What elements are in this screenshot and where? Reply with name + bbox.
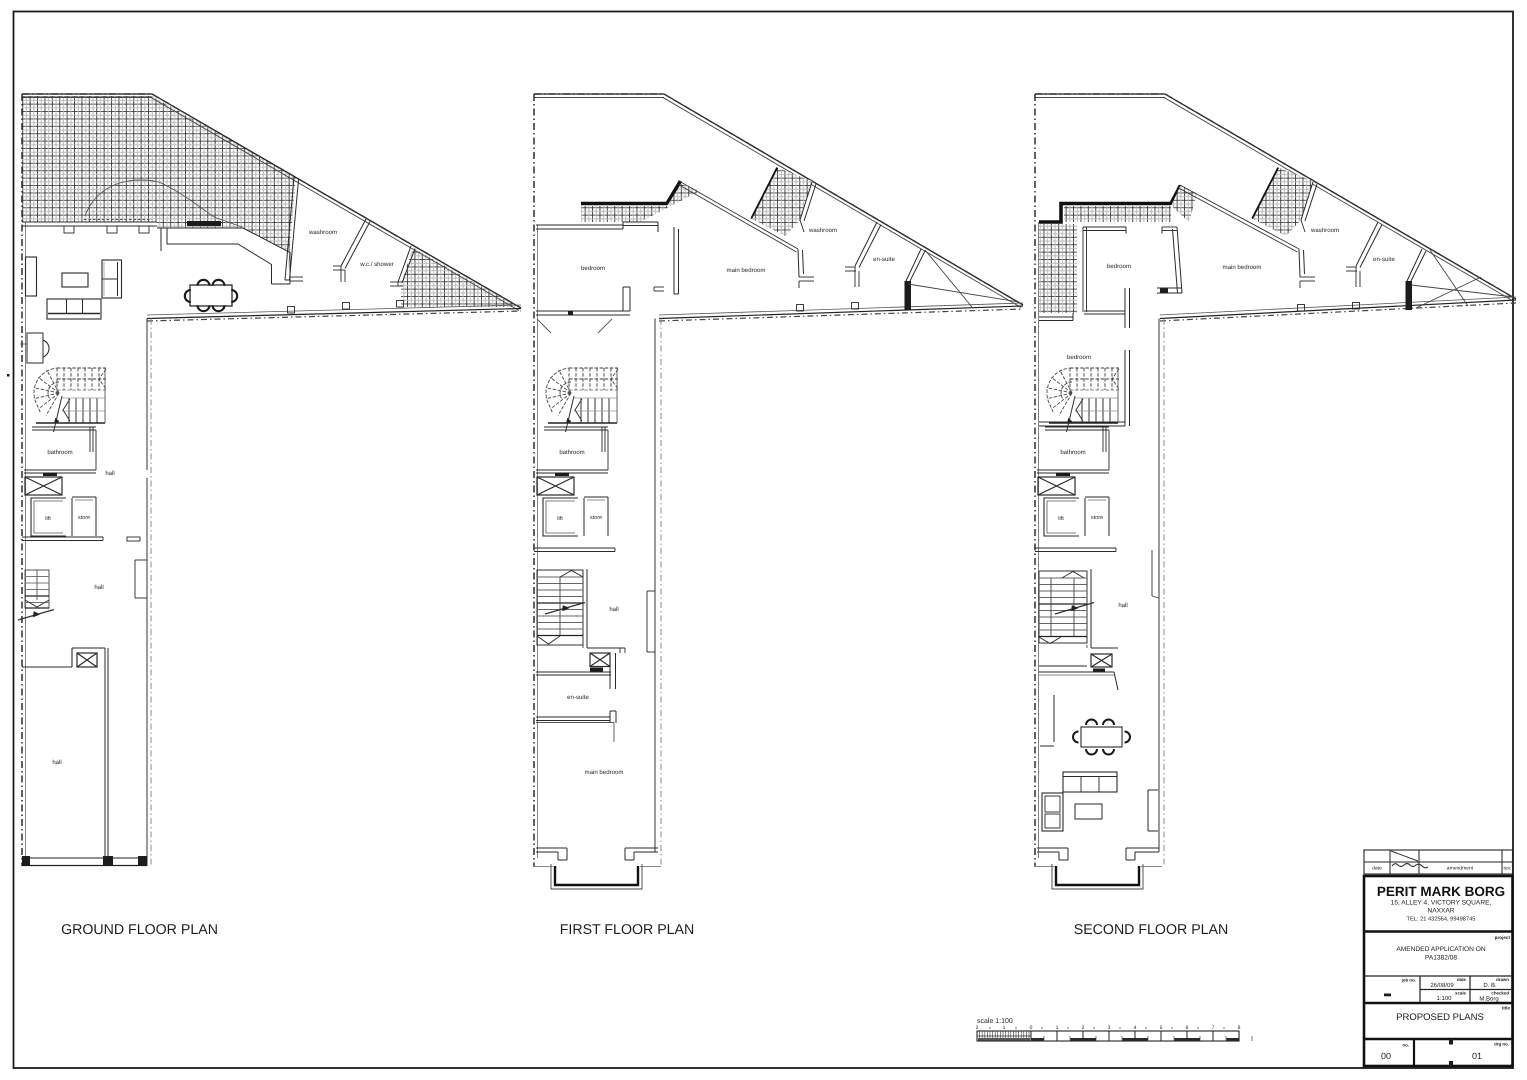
svg-text:1:100: 1:100 (1436, 995, 1452, 1002)
svg-text:hall: hall (105, 470, 114, 477)
svg-text:main bedroom: main bedroom (1223, 264, 1262, 271)
svg-text:00: 00 (1381, 1051, 1391, 1061)
svg-text:1: 1 (1056, 1025, 1059, 1031)
svg-text:hall: hall (52, 759, 61, 766)
svg-text:ʌ: ʌ (1041, 1025, 1043, 1030)
svg-text:job no.: job no. (1401, 978, 1416, 983)
svg-text:3: 3 (1108, 1025, 1111, 1031)
svg-text:ʌ: ʌ (1067, 1025, 1069, 1030)
svg-text:7: 7 (1212, 1025, 1215, 1031)
svg-text:hall: hall (609, 606, 618, 613)
svg-text:2: 2 (1082, 1025, 1085, 1031)
svg-text:en-suite: en-suite (873, 256, 895, 263)
svg-text:bedroom: bedroom (1067, 354, 1091, 361)
svg-text:PROPOSED PLANS: PROPOSED PLANS (1396, 1012, 1484, 1023)
svg-text:washroom: washroom (808, 227, 837, 234)
svg-text:ʌ: ʌ (1145, 1025, 1147, 1030)
svg-text:title: title (1502, 1006, 1511, 1011)
svg-text:01: 01 (1472, 1051, 1482, 1061)
svg-text:scale 1:100: scale 1:100 (977, 1017, 1013, 1025)
svg-text:bedroom: bedroom (1107, 263, 1131, 270)
svg-text:date: date (1372, 866, 1382, 872)
svg-text:SECOND FLOOR PLAN: SECOND FLOOR PLAN (1074, 922, 1229, 938)
svg-text:washroom: washroom (1310, 227, 1339, 234)
svg-text:lift: lift (45, 516, 51, 522)
svg-text:checked: checked (1491, 991, 1509, 996)
svg-text:en-suite: en-suite (1373, 256, 1395, 263)
svg-text:ʌ: ʌ (1119, 1025, 1121, 1030)
svg-text:4: 4 (1134, 1025, 1137, 1031)
svg-text:GROUND FLOOR PLAN: GROUND FLOOR PLAN (61, 922, 218, 938)
svg-text:scale: scale (1455, 991, 1467, 996)
svg-text:ʌ: ʌ (1093, 1025, 1095, 1030)
svg-text:NAXXAR: NAXXAR (1427, 908, 1454, 915)
svg-text:ʌ: ʌ (989, 1025, 991, 1030)
svg-text:PERIT MARK BORG: PERIT MARK BORG (1377, 884, 1505, 899)
svg-text:FIRST FLOOR PLAN: FIRST FLOOR PLAN (560, 922, 695, 938)
svg-text:0: 0 (1030, 1025, 1033, 1031)
svg-text:1: 1 (1003, 1025, 1006, 1031)
svg-text:M.Borg: M.Borg (1479, 996, 1498, 1003)
svg-text:store: store (1091, 515, 1103, 521)
svg-text:26/08/09: 26/08/09 (1430, 982, 1454, 989)
svg-text:TEL: 21 432564, 99498745: TEL: 21 432564, 99498745 (1407, 917, 1476, 923)
svg-text:project: project (1495, 935, 1511, 940)
svg-text:w.c./ shower: w.c./ shower (359, 261, 394, 268)
svg-text:drawn: drawn (1496, 977, 1509, 982)
svg-text:AMENDED APPLICATION ON: AMENDED APPLICATION ON (1396, 946, 1486, 953)
svg-text:D. B.: D. B. (1483, 982, 1497, 989)
svg-text:washroom: washroom (308, 229, 337, 236)
svg-text:ʌ: ʌ (1171, 1025, 1173, 1030)
svg-text:8: 8 (1238, 1025, 1241, 1031)
svg-text:6: 6 (1186, 1025, 1189, 1031)
svg-text:ʌ: ʌ (1015, 1025, 1017, 1030)
svg-text:hall: hall (1118, 602, 1127, 609)
svg-text:bathroom: bathroom (1060, 449, 1085, 456)
svg-text:lift: lift (1058, 516, 1064, 522)
svg-text:drg no.: drg no. (1494, 1042, 1509, 1047)
svg-text:ʌ: ʌ (1223, 1025, 1225, 1030)
svg-text:5: 5 (1160, 1025, 1163, 1031)
svg-text:no.: no. (1402, 1043, 1409, 1048)
svg-text:en-suite: en-suite (567, 694, 589, 701)
svg-text:rev.: rev. (1504, 866, 1512, 872)
svg-text:2: 2 (976, 1025, 979, 1031)
svg-text:PA1382/08: PA1382/08 (1425, 955, 1457, 962)
svg-text:lift: lift (557, 516, 563, 522)
svg-text:store: store (78, 515, 90, 521)
svg-text:date: date (1457, 977, 1467, 982)
svg-text:main bedroom: main bedroom (727, 267, 766, 274)
svg-text:store: store (590, 515, 602, 521)
svg-text:15, ALLEY 4, VICTORY SQUARE,: 15, ALLEY 4, VICTORY SQUARE, (1391, 900, 1492, 907)
svg-text:main bedroom: main bedroom (585, 769, 624, 776)
svg-text:amendment: amendment (1447, 866, 1474, 872)
svg-text:ʌ: ʌ (1197, 1025, 1199, 1030)
svg-text:bathroom: bathroom (47, 449, 72, 456)
svg-text:bedroom: bedroom (581, 265, 605, 272)
svg-text:hall: hall (94, 584, 103, 591)
svg-text:bathroom: bathroom (559, 449, 584, 456)
